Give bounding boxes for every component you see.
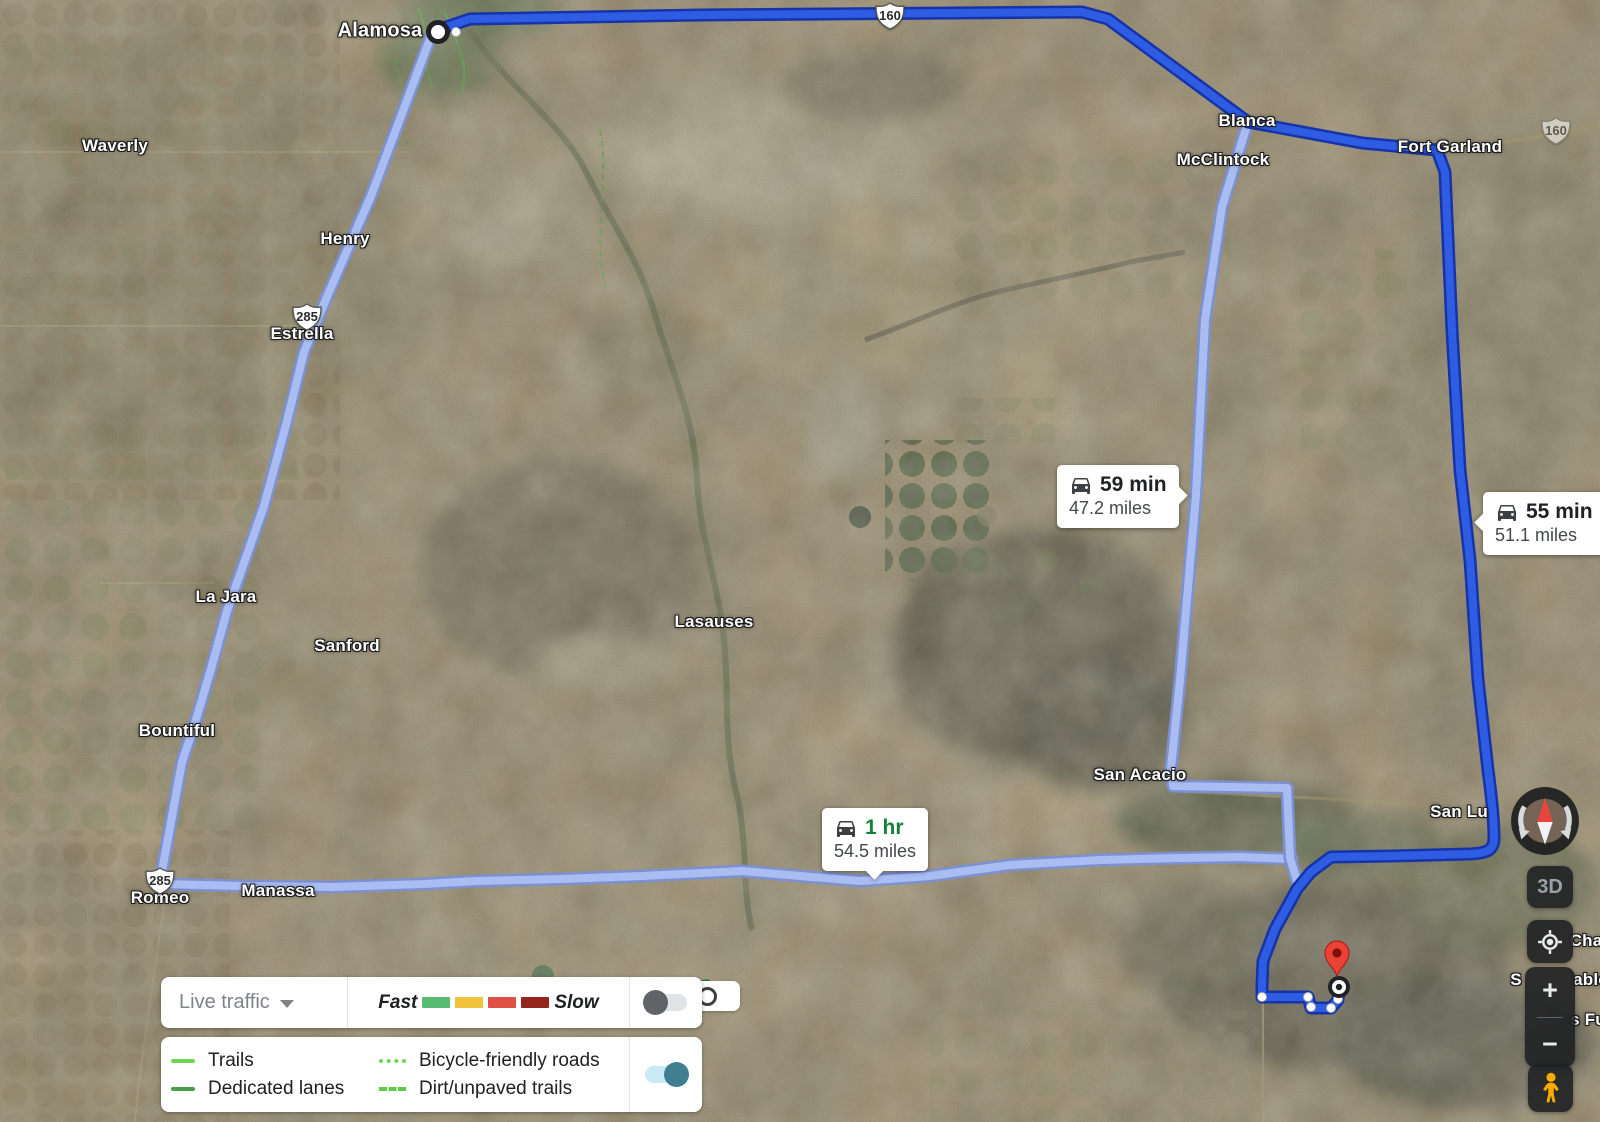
zoom-control: + − — [1525, 967, 1575, 1067]
bike-layer-panel: Trails Bicycle-friendly roads Dedicated … — [161, 1037, 702, 1112]
svg-text:160: 160 — [879, 8, 901, 23]
destination-circle — [1328, 976, 1350, 998]
svg-text:285: 285 — [296, 309, 318, 324]
badge-time: 1 hr — [865, 816, 904, 839]
traffic-color-medium — [455, 997, 483, 1008]
bicycle-friendly-line-swatch — [379, 1059, 406, 1063]
route-shield-160-top: 160 — [872, 1, 908, 31]
traffic-color-slowest — [521, 997, 549, 1008]
town-label: S — [1510, 970, 1522, 990]
zoom-out-button[interactable]: − — [1525, 1025, 1575, 1063]
live-traffic-panel: Live traffic Fast Slow — [161, 977, 702, 1028]
town-label: Lasauses — [674, 612, 753, 632]
town-label: Fort Garland — [1398, 137, 1502, 157]
toggle-knob — [643, 990, 668, 1015]
zoom-in-button[interactable]: + — [1525, 971, 1575, 1009]
legend-item-trails: Trails — [171, 1050, 379, 1072]
town-label: La Jara — [196, 587, 257, 607]
legend-item-bicycle-friendly: Bicycle-friendly roads — [379, 1050, 629, 1072]
compass-control[interactable] — [1509, 785, 1581, 857]
trails-line-swatch — [171, 1059, 195, 1063]
car-icon — [834, 816, 858, 840]
pegman-icon — [1538, 1072, 1564, 1104]
toggle-knob — [664, 1062, 689, 1087]
legend-item-dirt-trails: Dirt/unpaved trails — [379, 1078, 629, 1100]
dirt-trails-line-swatch — [379, 1087, 406, 1091]
town-label: Henry — [320, 229, 369, 249]
car-icon — [1495, 500, 1519, 524]
route-shield-285-romeo: 285 — [142, 866, 178, 896]
town-label: McClintock — [1177, 150, 1270, 170]
legend-item-dedicated-lanes: Dedicated lanes — [171, 1078, 379, 1100]
google-maps-satellite-view: { "app": {"title": "Google Maps satellit… — [0, 0, 1600, 1122]
route-badge-55min[interactable]: 55 min 51.1 miles — [1483, 492, 1600, 555]
3d-label: 3D — [1537, 876, 1563, 899]
town-label: San Lu — [1430, 802, 1488, 822]
badge-time: 59 min — [1100, 473, 1167, 496]
3d-view-button[interactable]: 3D — [1527, 866, 1573, 908]
live-traffic-toggle[interactable] — [645, 994, 687, 1011]
route-shield-160-right: 160 — [1538, 116, 1574, 146]
divider — [1537, 1017, 1563, 1018]
svg-text:285: 285 — [149, 873, 171, 888]
dedicated-lanes-line-swatch — [171, 1087, 195, 1091]
route-shield-285-estrella: 285 — [289, 302, 325, 332]
traffic-color-slow — [488, 997, 516, 1008]
fast-label: Fast — [378, 992, 417, 1014]
traffic-scale: Fast Slow — [348, 992, 629, 1014]
chevron-down-icon — [280, 1000, 294, 1008]
town-label: Alamosa — [338, 20, 423, 43]
car-icon — [1069, 473, 1093, 497]
badge-distance: 47.2 miles — [1069, 499, 1167, 519]
town-label: Sanford — [314, 636, 380, 656]
my-location-button[interactable] — [1527, 920, 1573, 963]
live-traffic-label: Live traffic — [179, 991, 270, 1014]
town-label: Manassa — [241, 881, 314, 901]
town-label: Blanca — [1219, 111, 1276, 131]
slow-label: Slow — [554, 992, 598, 1014]
live-traffic-dropdown[interactable]: Live traffic — [161, 991, 347, 1014]
town-label: Bountiful — [139, 721, 215, 741]
svg-text:160: 160 — [1545, 123, 1567, 138]
bike-layer-toggle[interactable] — [645, 1066, 687, 1083]
origin-marker[interactable] — [429, 23, 448, 42]
route-badge-1hr[interactable]: 1 hr 54.5 miles — [822, 808, 928, 871]
town-label: Waverly — [82, 136, 148, 156]
town-label: Cha — [1570, 931, 1600, 951]
badge-distance: 51.1 miles — [1495, 526, 1593, 546]
pegman-button[interactable] — [1528, 1064, 1573, 1112]
satellite-map[interactable] — [0, 0, 1600, 1122]
route-badge-59min[interactable]: 59 min 47.2 miles — [1057, 465, 1179, 528]
traffic-color-fast — [422, 997, 450, 1008]
town-label: ablo — [1573, 970, 1600, 990]
badge-time: 55 min — [1526, 500, 1593, 523]
badge-distance: 54.5 miles — [834, 842, 916, 862]
town-label: San Acacio — [1093, 765, 1186, 785]
my-location-icon — [1537, 929, 1563, 955]
